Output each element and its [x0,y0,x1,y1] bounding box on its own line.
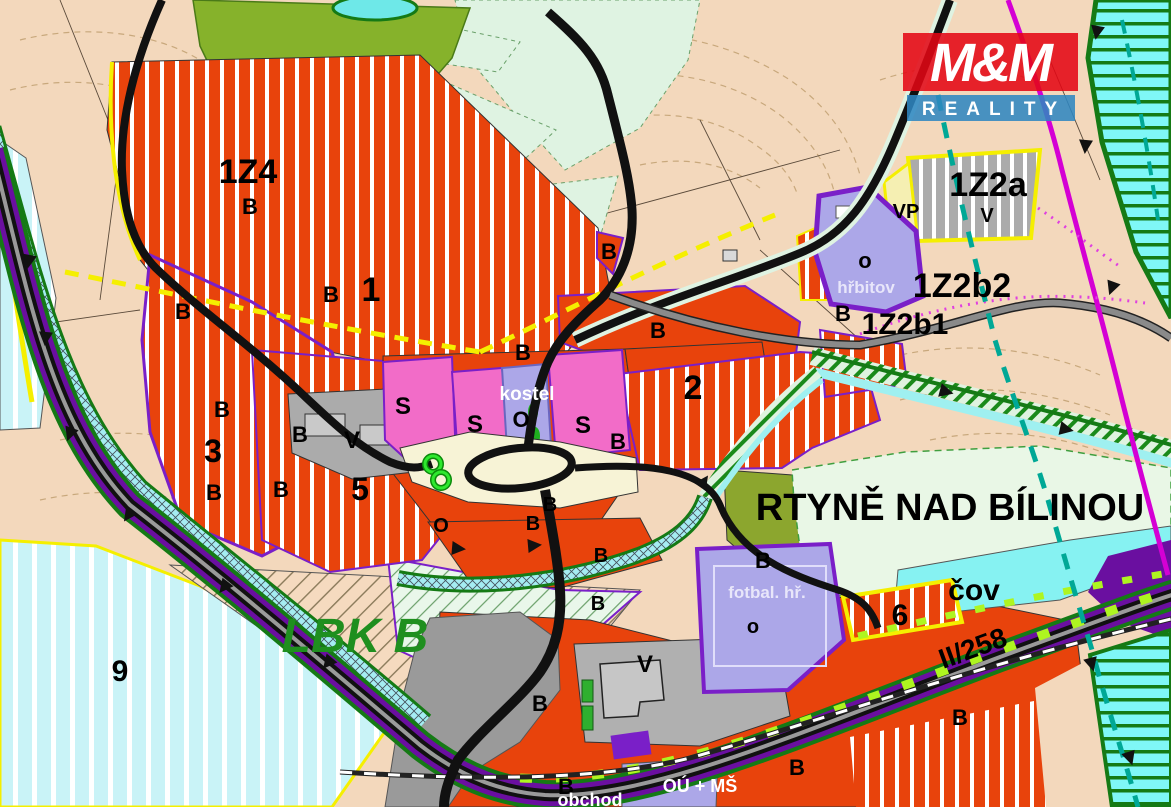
o-label-kostel: O [512,407,529,432]
name-obchod: obchod [558,790,623,807]
v-label-1z2a: V [980,205,994,227]
biocorridor-label: LBK B [282,610,429,663]
v-label-south: V [637,651,653,678]
area-2: 2 [684,369,703,407]
map-label-b-15: B [292,422,308,447]
name-ou-ms: OÚ + MŠ [663,775,738,796]
map-label-b-22: B [835,301,851,326]
map-label-b-27: B [591,593,605,615]
name-kostel: kostel [500,384,555,405]
map-label-b-21: B [610,429,626,454]
zoning-map-canvas: 1Z41Z2a1Z2b21Z2b1VP123569BBBBBBBBBBBBBBB… [0,0,1171,807]
building [723,250,737,261]
green-parcel [582,680,593,702]
map-label-b-24: B [543,494,557,516]
pond [333,0,417,20]
map-label-b-18: B [601,239,617,264]
map-label-b-12: B [323,282,339,307]
area-1: 1 [362,271,381,309]
o-label-fotbal: o [747,616,759,638]
name-hrbitov: hřbitov [837,278,895,297]
map-label-b-23: B [755,548,771,573]
area-5: 5 [351,471,369,507]
v-label-west: V [344,427,360,454]
map-label-s-33: S [467,411,483,438]
green-parcel [582,706,593,730]
logo-mm-text: M&M [930,33,1054,93]
map-label-b-25: B [526,513,540,535]
map-label-b-29: B [789,755,805,780]
map-label-b-16: B [206,480,222,505]
zone-code-1z4: 1Z4 [219,153,278,191]
zone-code-1z2a: 1Z2a [949,166,1028,204]
zone-code-1z2b1: 1Z2b1 [862,308,949,341]
map-label-b-13: B [175,299,191,324]
map-label-b-28: B [532,691,548,716]
town-name: RTYNĚ NAD BÍLINOU [756,485,1144,529]
map-label-b-17: B [273,477,289,502]
area-6: 6 [892,599,909,632]
map-label-s-34: S [575,412,591,439]
name-cov: čov [948,574,1000,607]
area-9: 9 [112,655,129,688]
o-label-center: O [433,515,449,537]
watermark-logo: M&M REALITY [903,33,1078,121]
map-label-s-32: S [395,393,411,420]
zoning-map-screenshot: 1Z41Z2a1Z2b21Z2b1VP123569BBBBBBBBBBBBBBB… [0,0,1171,807]
o-label-hrbitov: o [858,248,871,273]
map-label-b-11: B [242,194,258,219]
map-label-b-26: B [594,545,608,567]
map-label-b-19: B [515,340,531,365]
zone-code-vp: VP [893,201,920,223]
map-label-b-31: B [952,705,968,730]
name-fotbal-hriste: fotbal. hř. [728,583,805,602]
map-label-b-20: B [650,318,666,343]
zone-code-1z2b2: 1Z2b2 [913,267,1011,305]
logo-reality-text: REALITY [922,99,1066,120]
area-3: 3 [204,433,222,469]
map-label-b-14: B [214,397,230,422]
